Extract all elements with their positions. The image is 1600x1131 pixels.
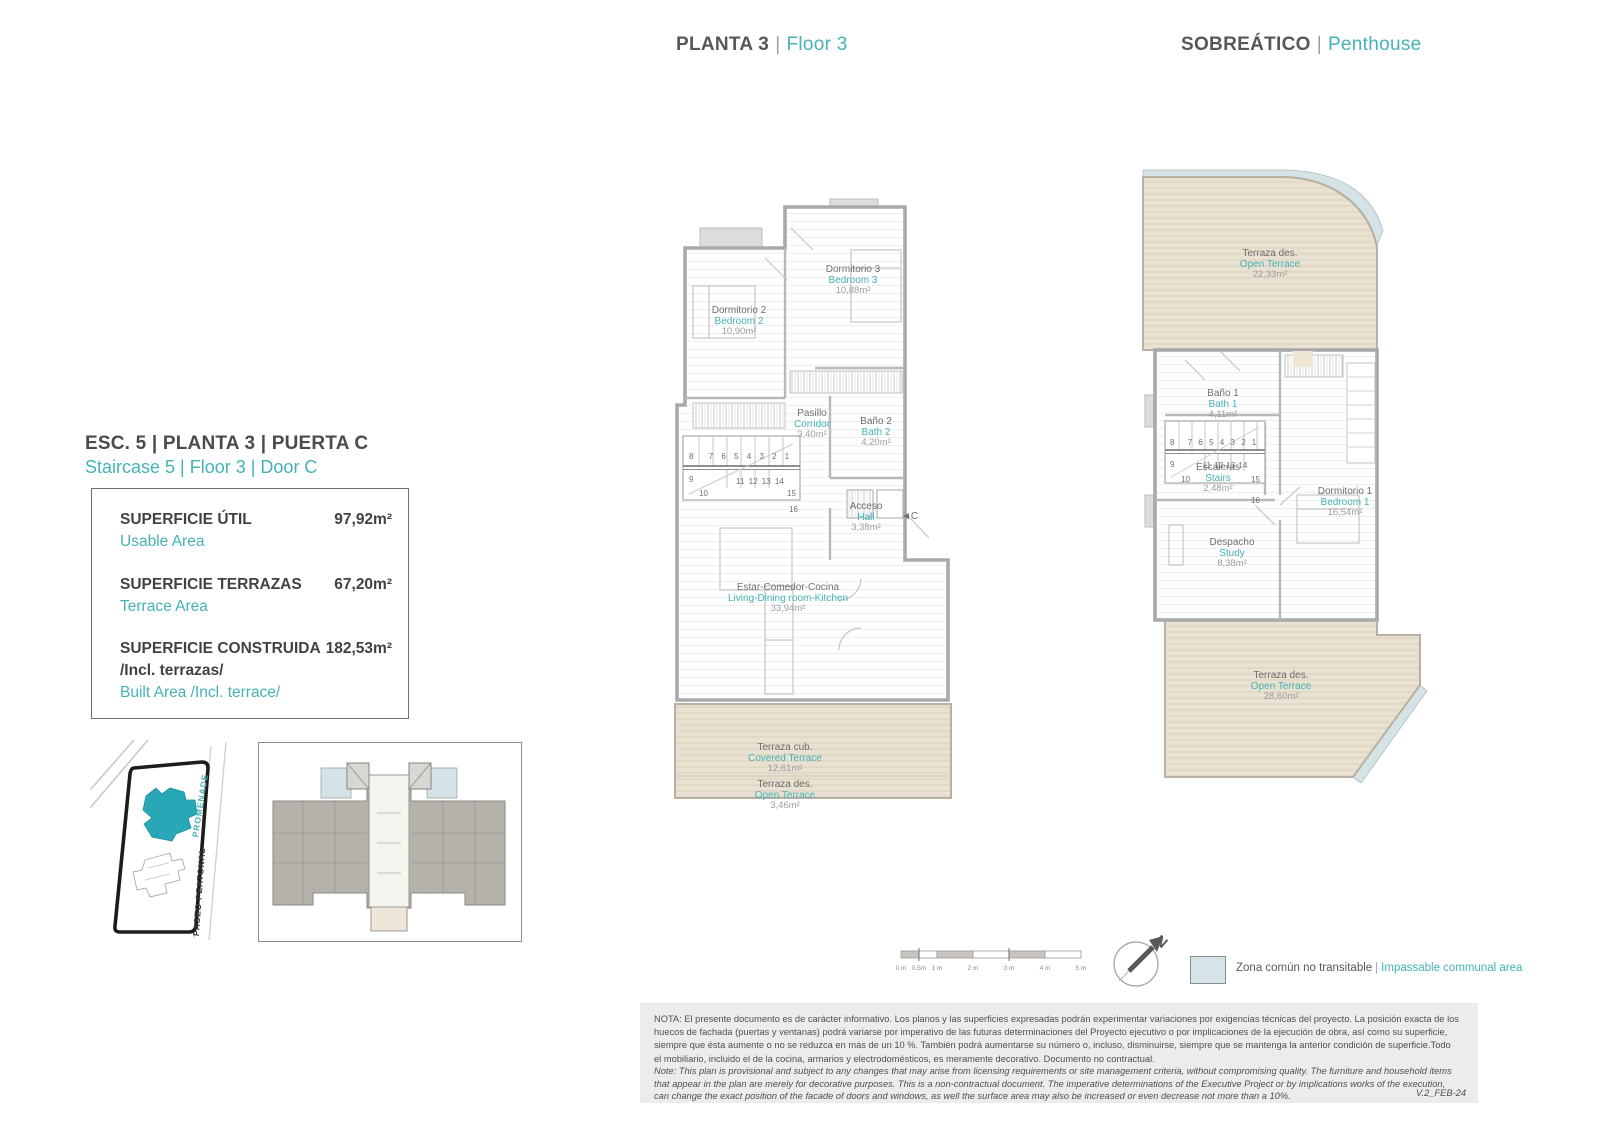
stair-number: 8 [1170,438,1175,447]
room-label-bath2: Baño 2 Bath 2 4,20m² [860,417,892,449]
legend-communal-swatch [1190,956,1226,984]
header-floor3-en: Floor 3 [786,34,847,55]
room-label-bedroom2: Dormitorio 2 Bedroom 2 10,90m² [712,306,766,338]
note-spanish: NOTA: El presente documento es de caráct… [654,1013,1460,1066]
header-penthouse: SOBREÁTICO|Penthouse [1181,34,1422,56]
plan-floor3: 8 7 6 5 4 3 2 1 9 11 12 13 14 10 15 16 [665,198,965,813]
room-name-es: Estar-Comedor-Cocina [728,583,848,594]
scale-label: 1 m [932,965,943,972]
legend-text-en: Impassable communal area [1381,962,1522,974]
usable-area-label-es: SUPERFICIE ÚTIL [120,511,252,529]
second-building-outline [133,853,185,897]
legend-divider: | [1372,962,1381,974]
room-label-open-terrace-f3: Terraza des. Open Terrace 3,46m² [755,780,815,812]
site-location-map: PROMENADE PASEO PEATONAL [90,740,240,940]
scale-label: 4 m [1040,965,1051,972]
room-name-es: Escaleras [1196,463,1240,474]
room-label-stairs: Escaleras Stairs 2,48m² [1196,463,1240,495]
room-area: 10,88m² [826,286,880,297]
highlighted-building [143,788,197,841]
usable-area-label-en: Usable Area [120,533,204,551]
room-label-study: Despacho Study 8,38m² [1209,538,1254,570]
room-area: 3,46m² [755,801,815,812]
stair-number: 16 [789,505,798,514]
stair-numbers-row: 11 12 13 14 [736,477,784,486]
stair-numbers-row: 7 6 5 4 3 2 1 [709,452,790,461]
stair-number: 8 [689,452,694,461]
built-area-value: 182,53m² [326,640,392,658]
room-area: 8,38m² [1209,559,1254,570]
usable-area-value: 97,92m² [334,511,392,529]
stair-number: 15 [1251,475,1260,484]
room-label-bedroom3: Dormitorio 3 Bedroom 3 10,88m² [826,265,880,297]
header-penthouse-es: SOBREÁTICO [1181,34,1311,55]
scale-label: 3 m [1004,965,1015,972]
scale-label: 0 m [896,965,907,972]
room-area: 33,94m² [728,604,848,615]
note-english: Note: This plan is provisional and subje… [654,1065,1460,1103]
room-label-bath1: Baño 1 Bath 1 4,11m² [1207,389,1239,421]
scale-bar: 0 m 0,5m 1 m 2 m 3 m 4 m 5 m [893,944,1093,976]
header-floor3-es: PLANTA 3 [676,34,769,55]
terrace-area-label-es: SUPERFICIE TERRAZAS [120,576,302,594]
legend-communal-text: Zona común no transitable|Impassable com… [1236,962,1522,974]
room-name-es: Terraza des. [1240,249,1300,260]
header-penthouse-en: Penthouse [1328,34,1422,55]
stair-number: 16 [1251,496,1260,505]
header-floor3: PLANTA 3|Floor 3 [676,34,848,56]
room-name-es: Pasillo [794,409,830,420]
terrace-area-label-en: Terrace Area [120,598,208,616]
room-area: 16,54m² [1318,508,1372,519]
north-arrow: N [1105,928,1171,994]
room-area: 3,38m² [850,523,883,534]
room-area: 28,60m² [1251,692,1311,703]
header-divider: | [769,34,786,55]
plan-version: V.2_FEB-24 [1416,1088,1466,1098]
stair-number: 15 [787,489,796,498]
scale-label: 2 m [968,965,979,972]
room-name-es: Terraza cub. [748,743,822,754]
scale-label: 0,5m [912,965,926,972]
room-area: 2,48m² [1196,484,1240,495]
room-area: 4,20m² [860,438,892,449]
room-name-es: Baño 2 [860,417,892,428]
room-name-es: Dormitorio 3 [826,265,880,276]
street-label-paseo: PASEO PEATONAL [191,847,207,936]
legend-text-es: Zona común no transitable [1236,962,1372,974]
room-label-living: Estar-Comedor-Cocina Living-Dining room-… [728,583,848,615]
key-plan [259,743,519,939]
room-area: 3,40m² [794,430,830,441]
floorplan-page: PLANTA 3|Floor 3 SOBREÁTICO|Penthouse ES… [0,0,1600,1131]
room-name-es: Baño 1 [1207,389,1239,400]
unit-title-es: ESC. 5 | PLANTA 3 | PUERTA C [85,433,368,455]
room-area: 4,11m² [1207,410,1239,421]
entrance-door-label: ◄C [901,511,918,522]
room-name-es: Terraza des. [1251,671,1311,682]
area-summary-box: SUPERFICIE ÚTIL 97,92m² Usable Area SUPE… [91,488,409,719]
scale-label: 5 m [1076,965,1087,972]
stair-numbers-row: 7 6 5 4 3 2 1 [1188,438,1257,447]
room-label-corridor: Pasillo Corridor 3,40m² [794,409,830,441]
terrace-area-value: 67,20m² [334,576,392,594]
room-label-bottom-terrace: Terraza des. Open Terrace 28,60m² [1251,671,1311,703]
stair-number: 10 [1181,475,1190,484]
header-divider: | [1311,34,1328,55]
room-label-bedroom1: Dormitorio 1 Bedroom 1 16,54m² [1318,487,1372,519]
room-name-es: Despacho [1209,538,1254,549]
room-label-covered-terrace: Terraza cub. Covered Terrace 12,61m² [748,743,822,775]
room-name-es: Terraza des. [755,780,815,791]
room-label-hall: Acceso Hall 3,38m² [850,502,883,534]
built-area-label-es2: /Incl. terrazas/ [120,662,223,680]
room-area: 12,61m² [748,764,822,775]
notes-block: NOTA: El presente documento es de caráct… [640,1003,1478,1103]
room-name-es: Dormitorio 2 [712,306,766,317]
built-area-label-es: SUPERFICIE CONSTRUIDA [120,640,321,658]
room-name-es: Dormitorio 1 [1318,487,1372,498]
room-label-top-terrace: Terraza des. Open Terrace 22,33m² [1240,249,1300,281]
room-name-es: Acceso [850,502,883,513]
stair-number: 9 [689,475,694,484]
room-area: 10,90m² [712,327,766,338]
unit-title-en: Staircase 5 | Floor 3 | Door C [85,457,317,478]
built-area-label-en: Built Area /Incl. terrace/ [120,684,280,702]
room-area: 22,33m² [1240,270,1300,281]
key-plan-panel [258,742,522,942]
key-plan-highlighted-unit [369,775,409,907]
stair-number: 10 [699,489,708,498]
stair-number: 9 [1170,460,1175,469]
